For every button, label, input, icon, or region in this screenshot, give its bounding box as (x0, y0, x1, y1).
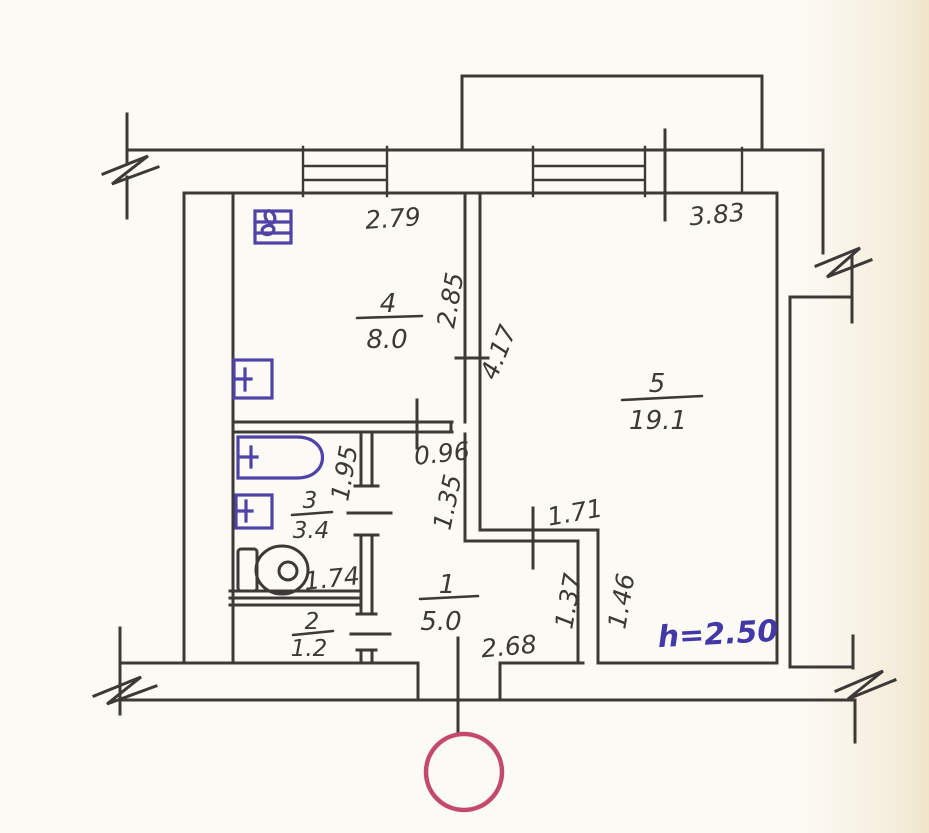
kitchen-bottom-wall (233, 422, 452, 432)
dim-living-notch-depth: 1.46 (602, 571, 640, 631)
room-3-number-label: 3 (303, 488, 318, 514)
break-bottom-right (836, 636, 895, 742)
room-4-area-label: 8.0 (366, 325, 407, 355)
dim-living-width: 3.83 (688, 198, 746, 232)
room-1-number-label: 1 (439, 570, 456, 600)
floor-plan-drawing: 2.79 3.83 2.85 4.17 0.96 1.35 1.95 1.74 … (0, 0, 929, 833)
dim-living-door-span: 1.71 (545, 493, 605, 531)
room-5-number-label: 5 (649, 369, 666, 399)
break-top-right (816, 248, 871, 322)
room-3-area-label: 3.4 (293, 518, 330, 544)
entrance-stamp-circle (426, 734, 502, 810)
room-5-area-label: 19.1 (629, 406, 687, 436)
dim-bath-width: 1.74 (303, 561, 361, 596)
room-2-number-label: 2 (305, 609, 320, 635)
dim-hall-wall-depth: 1.37 (549, 571, 587, 631)
room-4-number-label: 4 (380, 289, 397, 319)
dim-corridor-depth: 1.35 (428, 472, 468, 532)
bathroom-sink-icon (236, 495, 272, 528)
room-2-area-label: 1.2 (291, 636, 328, 662)
dim-hall-width: 2.68 (480, 630, 538, 664)
dim-kitchen-width: 2.79 (364, 202, 422, 235)
kitchen-sink-icon (234, 360, 272, 398)
bathtub-icon (238, 437, 323, 478)
room-1-area-label: 5.0 (420, 607, 461, 637)
bath-closet-wall (230, 591, 361, 605)
dim-corridor-width: 0.96 (413, 436, 471, 471)
floor-plan-sheet: 2.79 3.83 2.85 4.17 0.96 1.35 1.95 1.74 … (0, 0, 929, 833)
fixtures-group (234, 209, 323, 528)
stove-icon (255, 209, 291, 243)
ceiling-height-note: h=2.50 (657, 614, 779, 655)
toilet-icon (238, 546, 308, 594)
kitchen-window (303, 147, 387, 196)
dim-bath-depth: 1.95 (325, 443, 363, 503)
balcony-outline (462, 76, 762, 150)
dim-living-depth: 4.17 (475, 321, 523, 384)
living-window (533, 147, 645, 196)
break-top-left (103, 114, 158, 218)
windows-group (303, 147, 742, 196)
